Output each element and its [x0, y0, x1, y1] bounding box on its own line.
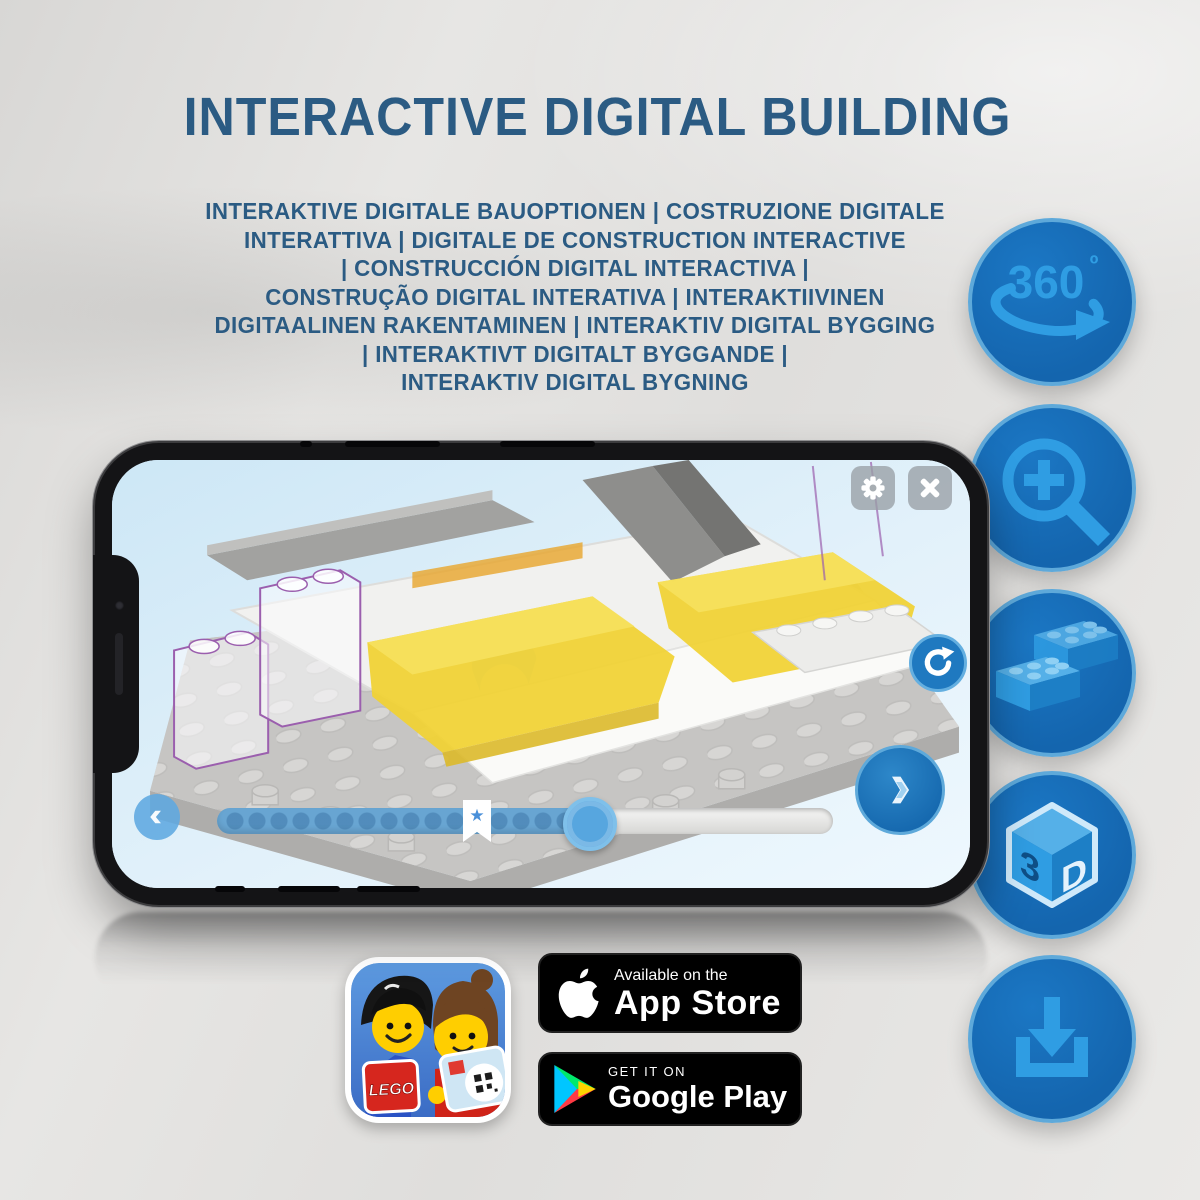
rotate-cw-icon: [920, 645, 956, 681]
power-button: [500, 441, 595, 447]
subtitle-line: | INTERAKTIVT DIGITALT BYGGANDE |: [42, 340, 1109, 369]
subtitle-line: DIGITAALINEN RAKENTAMINEN | INTERAKTIV D…: [42, 311, 1109, 340]
settings-button[interactable]: [851, 466, 895, 510]
google-play-tagline: GET IT ON: [608, 1064, 787, 1080]
app-store-badge[interactable]: Available on the App Store: [538, 953, 802, 1033]
gear-icon: [856, 471, 890, 505]
rotate-button[interactable]: [909, 634, 967, 692]
google-play-badge[interactable]: GET IT ON Google Play: [538, 1052, 802, 1126]
subtitle-line: | CONSTRUCCIÓN DIGITAL INTERACTIVA |: [42, 254, 1109, 283]
lego-bricks-icon: [972, 593, 1132, 753]
chevron-right-icon: [876, 766, 924, 814]
lego-logo: LEGO: [368, 1080, 415, 1099]
front-camera: [115, 601, 124, 610]
feature-circle-3d: 3 D: [968, 771, 1136, 939]
subtitle-line: INTERATTIVA | DIGITALE DE CONSTRUCTION I…: [42, 226, 1109, 255]
multilanguage-subtitle: INTERAKTIVE DIGITALE BAUOPTIONEN | COSTR…: [42, 197, 1109, 397]
lego-app-icon-art: LEGO: [351, 963, 505, 1117]
feature-circle-360: 360 º: [968, 218, 1136, 386]
previous-step-button[interactable]: [134, 794, 180, 840]
zoom-in-icon: [972, 408, 1132, 568]
lego-app-icon[interactable]: LEGO: [345, 957, 511, 1123]
volume-button: [345, 441, 440, 447]
subtitle-line: INTERAKTIV DIGITAL BYGNING: [42, 368, 1109, 397]
app-store-tagline: Available on the: [614, 966, 781, 985]
earpiece-speaker: [115, 633, 123, 695]
feature-circle-download: [968, 955, 1136, 1123]
next-step-button[interactable]: [855, 745, 945, 835]
bottom-speaker-slot: [278, 886, 340, 892]
mute-switch: [300, 441, 312, 447]
bottom-speaker-slot: [357, 886, 420, 892]
svg-text:360: 360: [1008, 256, 1085, 308]
feature-circle-bricks: [968, 589, 1136, 757]
page-title: INTERACTIVE DIGITAL BUILDING: [42, 88, 1153, 147]
phone-notch: [93, 555, 139, 773]
phone-mockup: ★: [95, 443, 987, 905]
google-play-name: Google Play: [608, 1080, 787, 1114]
progress-handle[interactable]: [563, 797, 617, 851]
subtitle-line: INTERAKTIVE DIGITALE BAUOPTIONEN | COSTR…: [42, 197, 1109, 226]
download-icon: [972, 959, 1132, 1119]
svg-text:º: º: [1090, 251, 1099, 278]
bottom-port-slot: [215, 886, 245, 892]
build-step-dots: [224, 808, 576, 834]
chevron-left-icon: [144, 804, 170, 830]
360-rotation-icon: 360 º: [972, 222, 1132, 382]
close-icon: [914, 472, 946, 504]
google-play-triangle-icon: [554, 1065, 596, 1113]
feature-circle-zoom: [968, 404, 1136, 572]
app-screen: ★: [112, 460, 970, 888]
close-button[interactable]: [908, 466, 952, 510]
apple-logo-icon: [556, 966, 602, 1020]
promo-canvas: INTERACTIVE DIGITAL BUILDING INTERAKTIVE…: [0, 0, 1200, 1200]
subtitle-line: CONSTRUÇÃO DIGITAL INTERATIVA | INTERAKT…: [42, 283, 1109, 312]
3d-cube-icon: 3 D: [972, 775, 1132, 935]
app-store-name: App Store: [614, 985, 781, 1021]
